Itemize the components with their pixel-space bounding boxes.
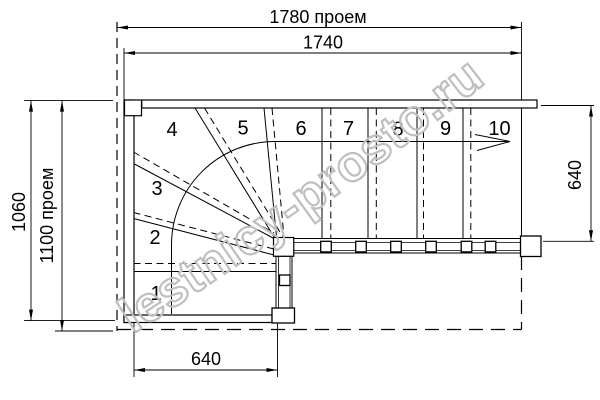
svg-text:10: 10 (488, 118, 510, 140)
svg-text:5: 5 (237, 118, 248, 140)
svg-text:640: 640 (565, 160, 585, 190)
svg-text:1740: 1740 (303, 33, 343, 53)
svg-text:6: 6 (295, 118, 306, 140)
svg-text:3: 3 (151, 178, 162, 200)
svg-text:2: 2 (149, 227, 160, 249)
svg-text:1780 проем: 1780 проем (269, 7, 366, 27)
svg-text:1060: 1060 (9, 192, 29, 232)
svg-text:4: 4 (166, 119, 177, 141)
svg-text:1100 проем: 1100 проем (37, 168, 57, 264)
svg-text:640: 640 (191, 349, 221, 369)
